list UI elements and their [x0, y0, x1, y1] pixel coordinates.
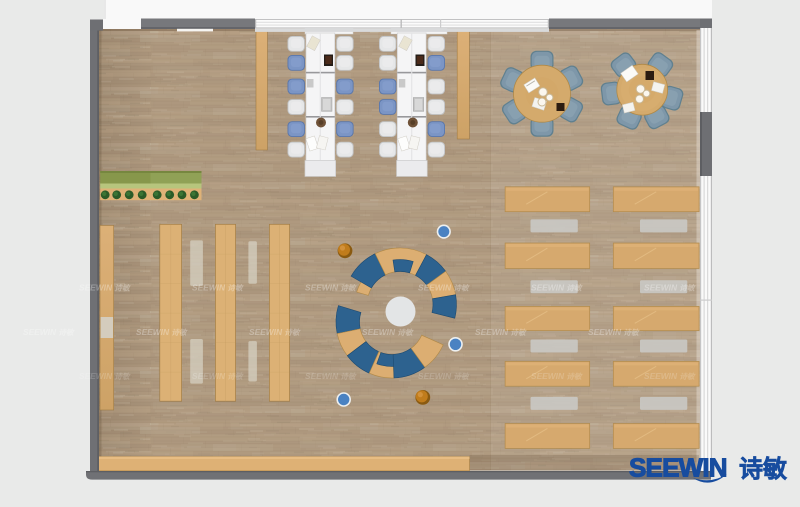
svg-text:SEEWIN 诗敏: SEEWIN 诗敏 [23, 327, 75, 337]
svg-text:SEEWIN 诗敏: SEEWIN 诗敏 [644, 371, 696, 381]
svg-text:SEEWIN 诗敏: SEEWIN 诗敏 [362, 327, 414, 337]
svg-text:SEEWIN 诗敏: SEEWIN 诗敏 [644, 283, 696, 293]
svg-text:诗敏: 诗敏 [739, 456, 787, 483]
svg-text:SEEWIN 诗敏: SEEWIN 诗敏 [305, 371, 357, 381]
svg-text:SEEWIN 诗敏: SEEWIN 诗敏 [531, 371, 583, 381]
svg-text:SEEWIN 诗敏: SEEWIN 诗敏 [136, 327, 188, 337]
svg-text:SEEWIN 诗敏: SEEWIN 诗敏 [192, 283, 244, 293]
svg-text:SEEWIN 诗敏: SEEWIN 诗敏 [305, 283, 357, 293]
svg-text:SEEWIN 诗敏: SEEWIN 诗敏 [249, 327, 301, 337]
svg-text:SEEWIN 诗敏: SEEWIN 诗敏 [79, 283, 131, 293]
svg-text:SEEWIN 诗敏: SEEWIN 诗敏 [588, 327, 640, 337]
svg-text:SEEWIN 诗敏: SEEWIN 诗敏 [531, 283, 583, 293]
svg-text:SEEWIN 诗敏: SEEWIN 诗敏 [79, 371, 131, 381]
svg-text:SEEWIN 诗敏: SEEWIN 诗敏 [418, 283, 470, 293]
svg-text:SEEWIN: SEEWIN [629, 453, 727, 483]
svg-text:SEEWIN 诗敏: SEEWIN 诗敏 [475, 327, 527, 337]
svg-text:SEEWIN 诗敏: SEEWIN 诗敏 [192, 371, 244, 381]
svg-text:SEEWIN 诗敏: SEEWIN 诗敏 [418, 371, 470, 381]
